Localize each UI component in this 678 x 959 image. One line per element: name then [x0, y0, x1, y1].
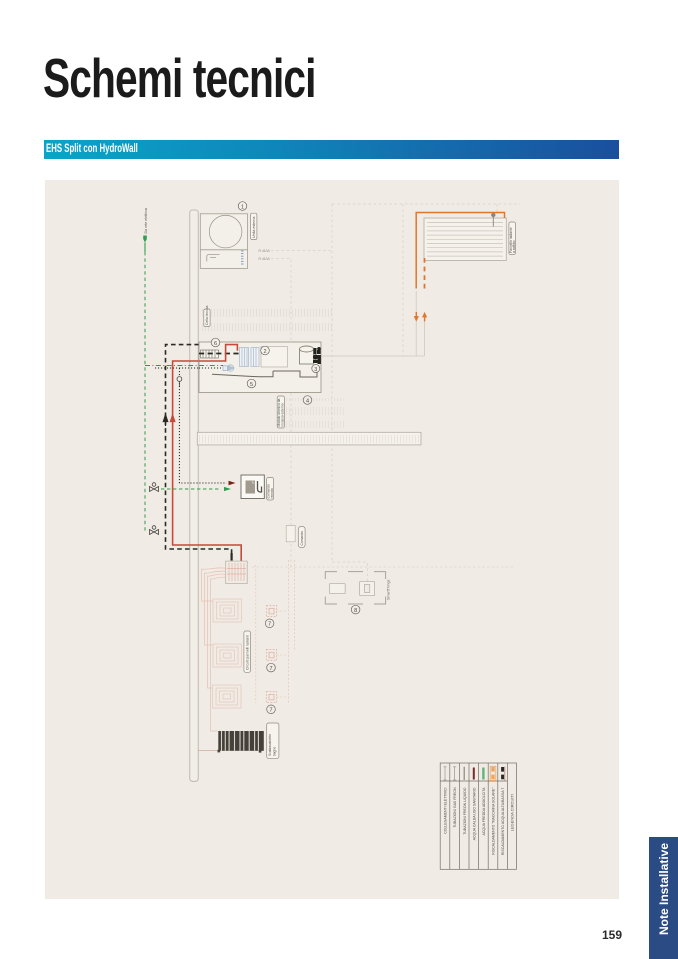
svg-text:R 410A: R 410A	[259, 257, 271, 261]
svg-text:RISCALDAMENTO "MACCHINA SOLARE: RISCALDAMENTO "MACCHINA SOLARE"	[492, 787, 496, 855]
svg-text:Comando: Comando	[300, 531, 304, 545]
svg-text:remoto: remoto	[270, 488, 274, 498]
svg-text:LEGENDA CIRCUITI: LEGENDA CIRCUITI	[510, 794, 515, 831]
svg-text:COLLEGAMENTI ELETTRICI: COLLEGAMENTI ELETTRICI	[444, 787, 448, 833]
svg-text:bagno: bagno	[272, 747, 276, 756]
svg-text:Da rete elettrica: Da rete elettrica	[144, 208, 148, 233]
svg-text:Circuiti pannelli radianti: Circuiti pannelli radianti	[245, 635, 249, 670]
svg-text:3: 3	[314, 367, 317, 373]
svg-text:2: 2	[263, 349, 266, 355]
svg-text:RISCALDAMENTO ACQUA ALTA/BASSA: RISCALDAMENTO ACQUA ALTA/BASSA T	[501, 787, 505, 855]
svg-text:incasso esterno: incasso esterno	[281, 403, 285, 426]
svg-text:1: 1	[241, 204, 244, 210]
svg-text:6: 6	[214, 341, 217, 347]
svg-text:R 410A: R 410A	[259, 249, 271, 253]
svg-text:ACQUA FREDDA ADDOLCITA: ACQUA FREDDA ADDOLCITA	[482, 787, 486, 836]
svg-text:7: 7	[269, 666, 272, 672]
svg-text:TUBAZIONI FREON LIQUIDO: TUBAZIONI FREON LIQUIDO	[463, 787, 467, 835]
svg-text:7: 7	[268, 622, 271, 628]
svg-text:SmartThings: SmartThings	[387, 579, 391, 600]
svg-text:ACQUA CALDA USO SANITARIO: ACQUA CALDA USO SANITARIO	[472, 787, 476, 840]
svg-text:Cella tecnica: Cella tecnica	[205, 305, 209, 325]
svg-text:5: 5	[250, 382, 253, 388]
svg-text:a soffitto: a soffitto	[512, 240, 516, 253]
svg-text:8: 8	[354, 608, 357, 614]
svg-text:Unità esterna: Unità esterna	[252, 217, 256, 238]
svg-text:4: 4	[306, 398, 309, 404]
svg-text:7: 7	[269, 708, 272, 714]
svg-text:TUBAZIONI GAS FREON: TUBAZIONI GAS FREON	[453, 787, 457, 828]
